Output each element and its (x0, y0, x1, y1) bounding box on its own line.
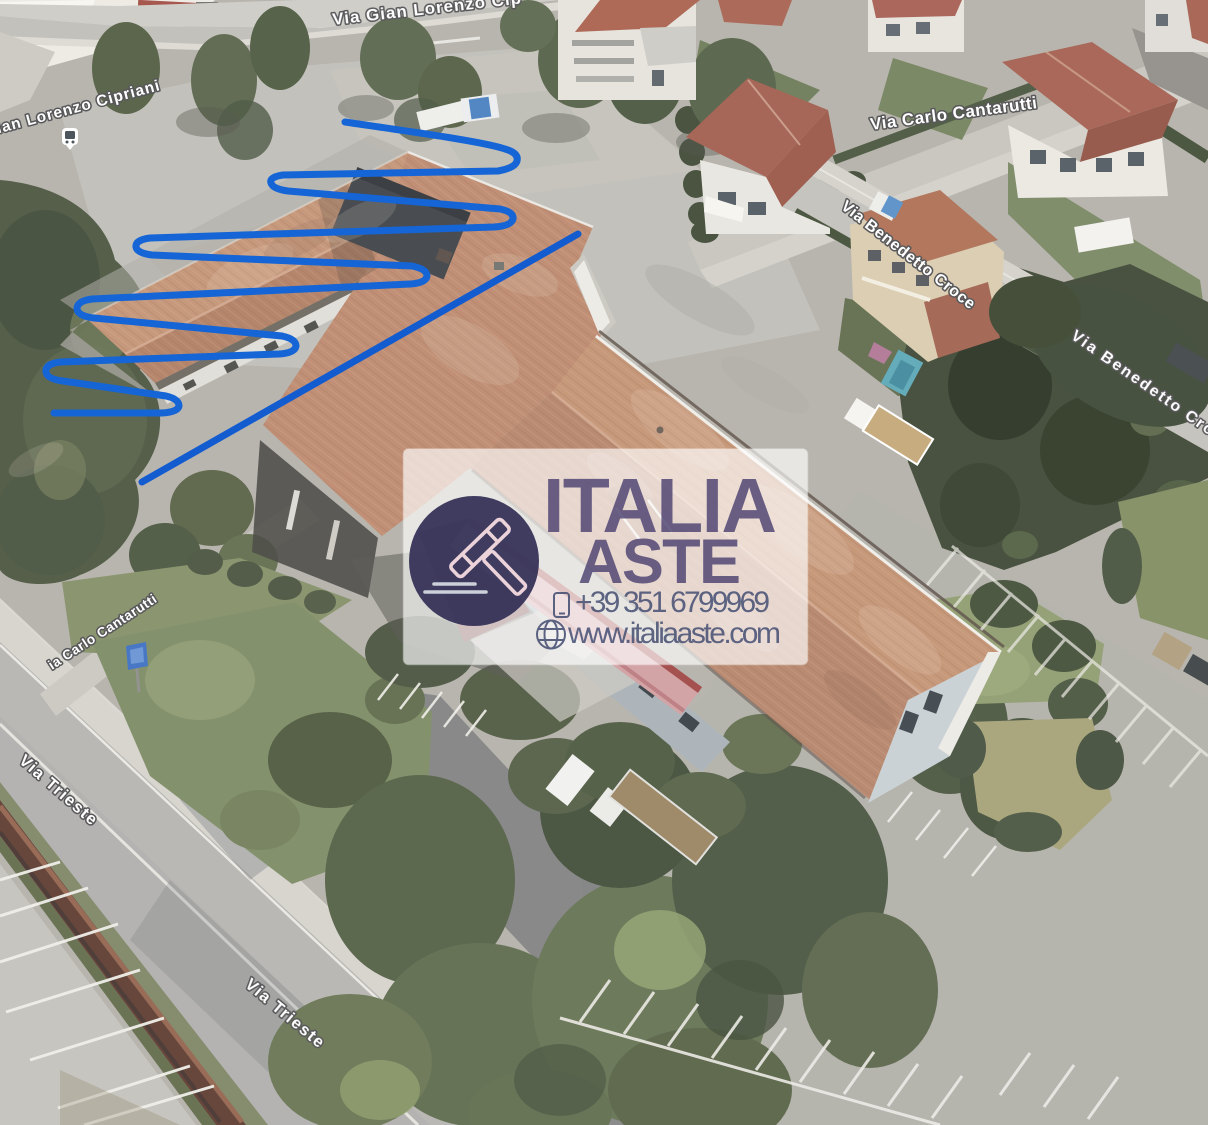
svg-text:+39 351 6799969: +39 351 6799969 (575, 586, 770, 619)
svg-text:www.italiaaste.com: www.italiaaste.com (567, 617, 781, 650)
